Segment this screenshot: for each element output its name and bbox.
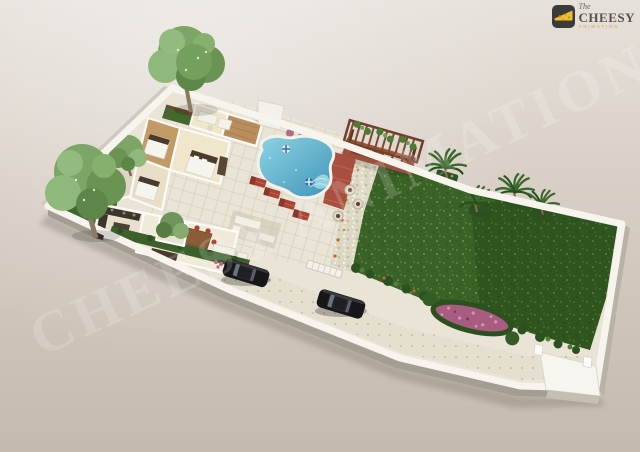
cheese-icon (552, 5, 575, 28)
brand-logo: The CHEESY ANIMATION (552, 3, 635, 29)
brand-suffix: ANIMATION (579, 25, 635, 30)
pool-float (282, 145, 290, 153)
brand-name: CHEESY (579, 11, 635, 24)
pool-float (305, 178, 313, 186)
brand-text: The CHEESY ANIMATION (579, 3, 635, 30)
floor-plan-render (0, 0, 640, 452)
tree-canopy (148, 26, 225, 91)
render-canvas: CHEESY ANIMATION The CHEESY ANIMATION (0, 0, 640, 452)
